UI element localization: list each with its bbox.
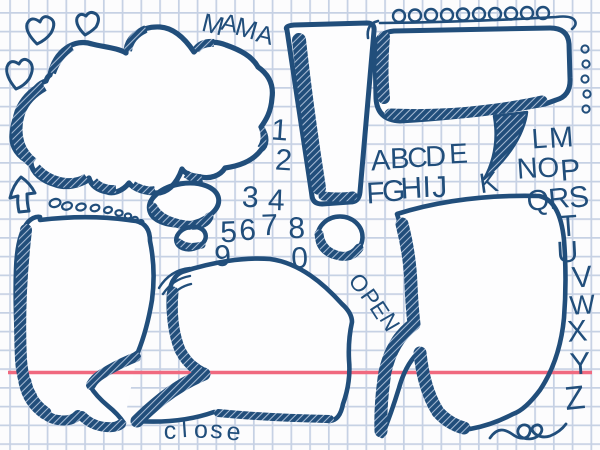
svg-text:s: s <box>209 416 223 445</box>
svg-text:Y: Y <box>569 345 592 381</box>
svg-text:O: O <box>536 151 560 183</box>
svg-text:6: 6 <box>239 214 257 248</box>
svg-text:N: N <box>516 152 539 185</box>
svg-text:M: M <box>548 121 574 155</box>
svg-text:H: H <box>400 171 423 205</box>
svg-text:8: 8 <box>288 212 306 246</box>
svg-text:c: c <box>164 417 177 445</box>
svg-text:A: A <box>370 144 392 177</box>
svg-text:0: 0 <box>291 242 309 276</box>
svg-text:X: X <box>566 314 588 348</box>
svg-text:J: J <box>432 171 448 205</box>
svg-text:2: 2 <box>274 143 293 177</box>
svg-text:Z: Z <box>563 378 587 417</box>
svg-text:E: E <box>448 138 468 170</box>
svg-text:9: 9 <box>214 240 232 274</box>
svg-text:L: L <box>530 123 548 155</box>
svg-text:7: 7 <box>261 209 279 243</box>
svg-text:e: e <box>226 418 242 447</box>
svg-text:o: o <box>194 416 208 444</box>
svg-text:D: D <box>425 141 447 174</box>
svg-text:I: I <box>422 171 431 204</box>
svg-text:3: 3 <box>241 181 259 215</box>
svg-text:1: 1 <box>270 113 289 147</box>
